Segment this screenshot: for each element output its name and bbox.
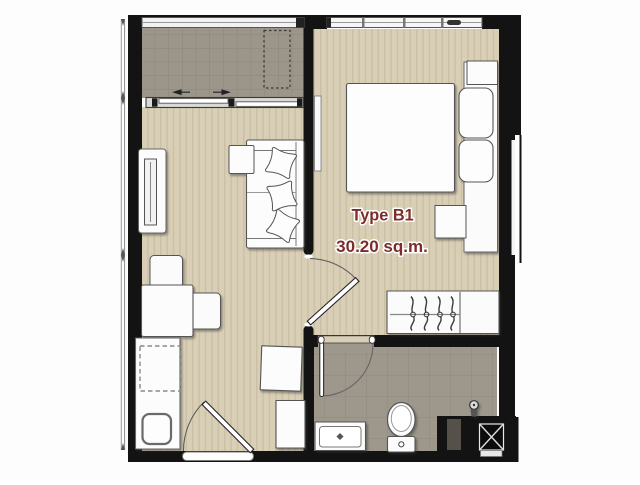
svg-text:30.20 sq.m.: 30.20 sq.m. (336, 237, 428, 256)
svg-text:Type B1: Type B1 (352, 206, 414, 224)
